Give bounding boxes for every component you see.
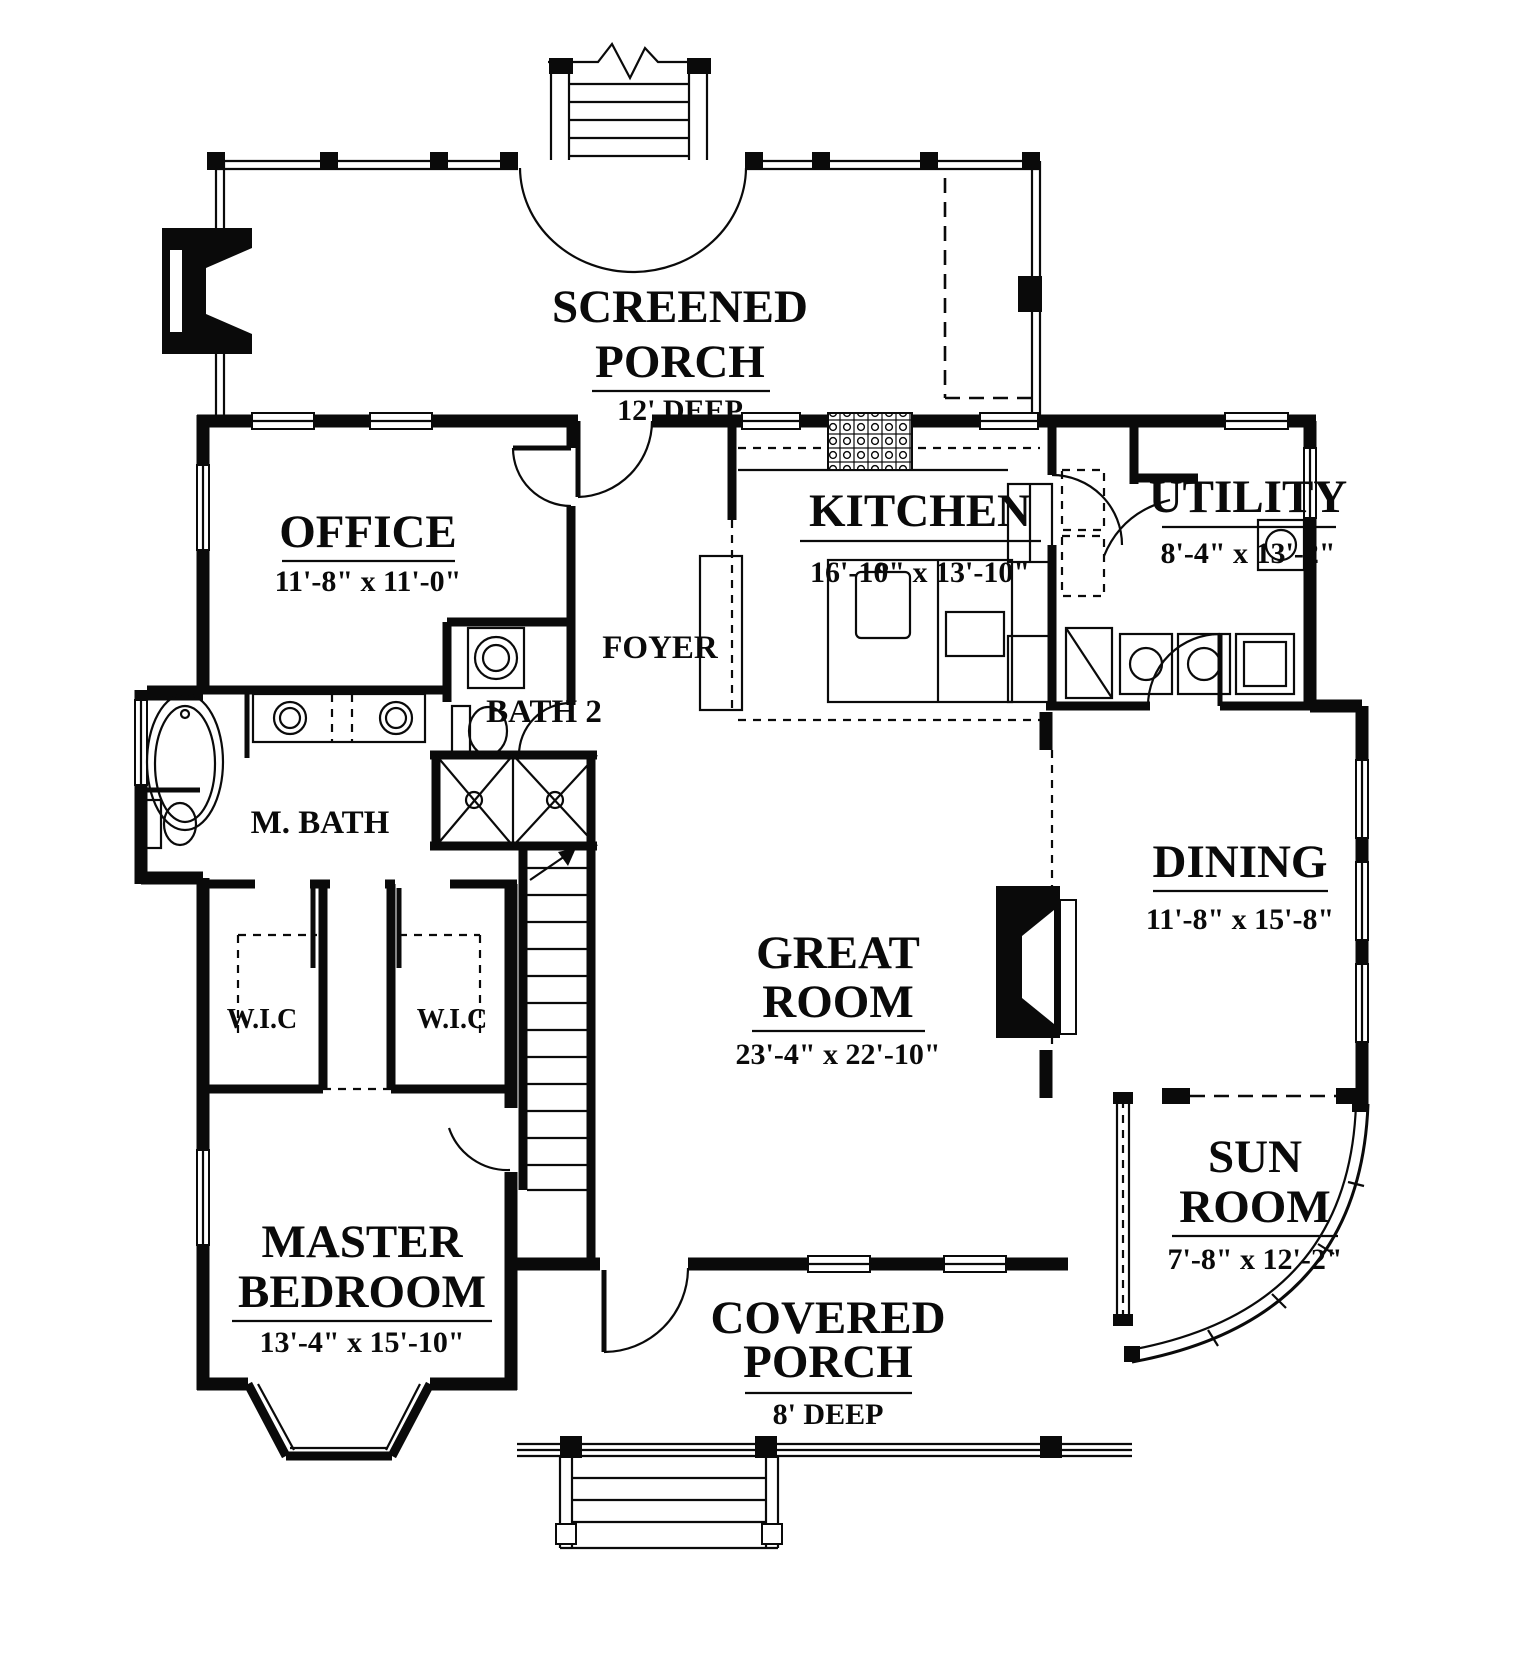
window — [980, 413, 1038, 429]
label-dining: DINING — [1153, 836, 1328, 888]
label-great-room-2: ROOM — [762, 976, 913, 1028]
vanity-double-sink-icon — [253, 694, 425, 742]
dim-screened-porch: 12' DEEP — [617, 394, 743, 427]
label-great-room-1: GREAT — [756, 927, 920, 979]
entry-stoop-steps — [548, 44, 711, 160]
dim-kitchen: 16'-10" x 13'-10" — [810, 556, 1030, 589]
window — [1356, 862, 1368, 940]
porch-steps — [556, 1456, 782, 1548]
window — [742, 413, 800, 429]
stair-direction-arrow-icon — [530, 848, 576, 880]
shower-icon — [436, 755, 597, 846]
range-icon — [828, 413, 912, 470]
label-covered-porch-2: PORCH — [743, 1336, 913, 1388]
label-master-bedroom-1: MASTER — [261, 1216, 463, 1268]
label-master-bedroom-2: BEDROOM — [238, 1266, 486, 1318]
window — [370, 413, 432, 429]
covered-porch-edge — [517, 1436, 1132, 1458]
label-sun-room-1: SUN — [1208, 1131, 1302, 1183]
window — [1225, 413, 1288, 429]
window — [135, 700, 147, 785]
window — [197, 1150, 209, 1245]
label-kitchen: KITCHEN — [809, 485, 1031, 537]
mudroom-cubbies — [1066, 628, 1294, 698]
floor-plan-drawing: SCREENED PORCH 12' DEEP OFFICE 11'-8" x … — [0, 0, 1540, 1664]
label-foyer: FOYER — [602, 630, 719, 666]
label-utility: UTILITY — [1149, 471, 1348, 523]
base-cabinet-icon — [1008, 636, 1052, 702]
window — [1356, 964, 1368, 1042]
window — [1356, 760, 1368, 838]
floor-plan-page: SCREENED PORCH 12' DEEP OFFICE 11'-8" x … — [0, 0, 1540, 1664]
window — [808, 1256, 870, 1272]
dim-office: 11'-8" x 11'-0" — [275, 565, 462, 598]
tub-icon — [147, 694, 223, 830]
dim-utility: 8'-4" x 13'-2" — [1161, 537, 1336, 570]
label-wic-left: W.I.C — [227, 1004, 298, 1035]
label-screened-porch-1: SCREENED — [552, 281, 808, 333]
window — [944, 1256, 1006, 1272]
dim-sun-room: 7'-8" x 12'-2" — [1168, 1243, 1343, 1276]
bay-window — [248, 1384, 430, 1456]
sink-icon — [468, 628, 524, 688]
label-master-bath: M. BATH — [251, 805, 390, 841]
bath2-fixtures — [452, 628, 524, 756]
window — [197, 465, 209, 550]
dim-great-room: 23'-4" x 22'-10" — [736, 1038, 941, 1071]
dim-master-bedroom: 13'-4" x 15'-10" — [260, 1326, 465, 1359]
label-sun-room-2: ROOM — [1179, 1181, 1330, 1233]
dim-covered-porch: 8' DEEP — [773, 1398, 884, 1431]
label-wic-right: W.I.C — [417, 1004, 488, 1035]
porch-fireplace-icon — [162, 228, 252, 354]
window — [252, 413, 314, 429]
label-screened-porch-2: PORCH — [595, 336, 765, 388]
dining-fireplace-icon — [996, 886, 1076, 1038]
entry-arch-double-door — [520, 168, 746, 272]
label-bath2: BATH 2 — [486, 694, 602, 730]
label-office: OFFICE — [279, 506, 457, 558]
dim-dining: 11'-8" x 15'-8" — [1146, 903, 1334, 936]
stairs — [527, 848, 587, 1190]
